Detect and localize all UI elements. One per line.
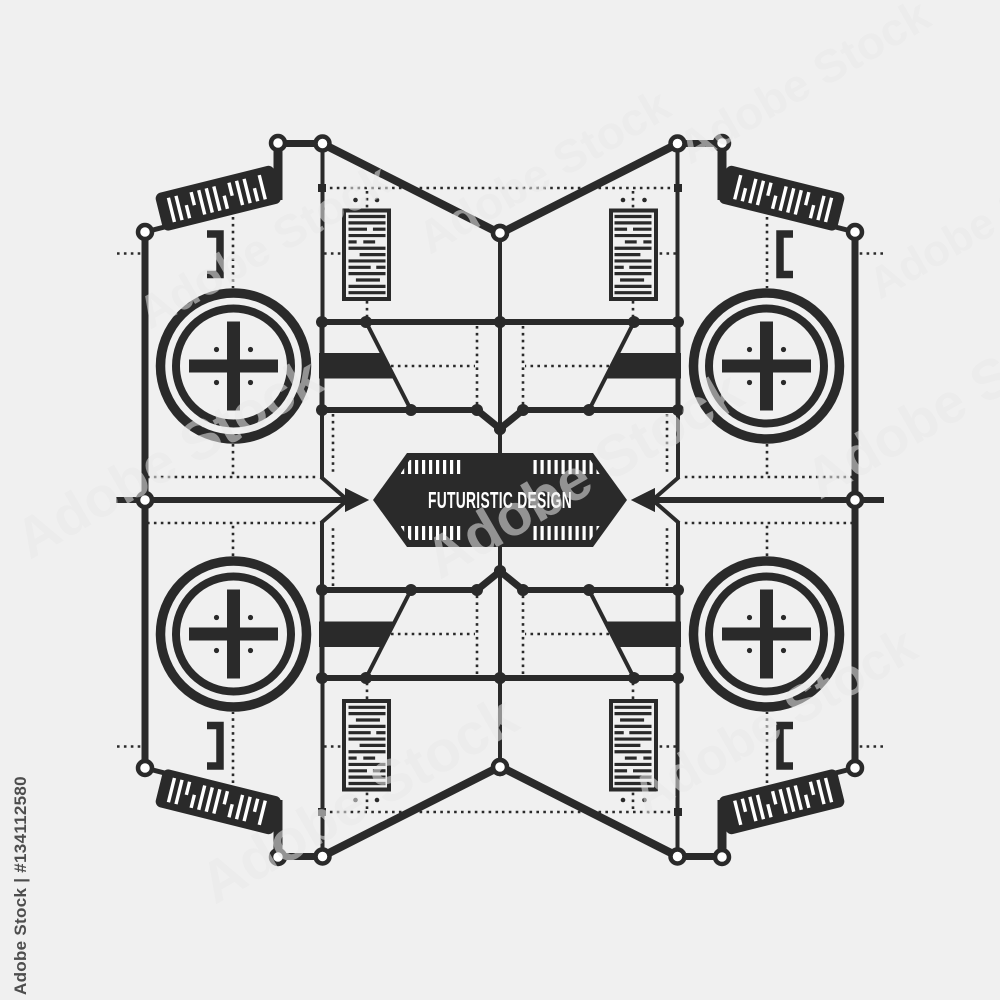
- design-canvas: FUTURISTIC DESIGN Adobe Stock Adobe Stoc…: [0, 0, 1000, 1000]
- futuristic-design-graphic: FUTURISTIC DESIGN Adobe Stock Adobe Stoc…: [0, 0, 1000, 1000]
- stock-credit-label: Adobe Stock | #134112580: [11, 776, 30, 995]
- watermark-text: Adobe Stock: [669, 0, 939, 174]
- watermark-text: Adobe Stock: [861, 132, 1000, 309]
- watermark-text: Adobe Stock: [5, 344, 334, 570]
